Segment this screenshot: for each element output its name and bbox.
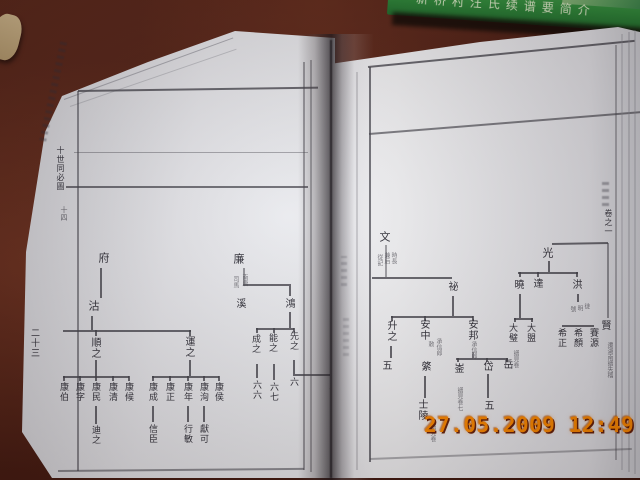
annotation: 明 xyxy=(576,305,582,311)
tree-connector xyxy=(203,376,205,381)
tree-connector xyxy=(452,296,454,316)
tree-connector xyxy=(390,346,392,358)
tree-connector xyxy=(256,364,258,378)
tree-connector xyxy=(457,358,459,362)
chart-border xyxy=(77,91,79,471)
chart-border xyxy=(369,67,371,462)
fore-edge-line xyxy=(621,34,623,470)
fore-edge-line xyxy=(634,30,636,474)
reference-number: 六 xyxy=(288,377,297,387)
tree-connector xyxy=(576,272,578,277)
annotation: 譜見卷七 xyxy=(456,387,462,411)
tree-connector xyxy=(91,316,93,330)
descendant-node: 成之 xyxy=(250,334,259,354)
tree-connector xyxy=(607,243,609,318)
tree-connector xyxy=(518,272,578,274)
tree-connector xyxy=(187,376,189,381)
tree-connector xyxy=(289,312,291,328)
tree-connector xyxy=(152,406,154,422)
descendant-node: 岱 xyxy=(481,361,491,372)
descendant-node: 洪 xyxy=(570,279,580,290)
migration-note: 遷湖南譜失稽 xyxy=(606,342,612,378)
chart-subtitle: 十四 xyxy=(60,206,67,222)
tree-connector xyxy=(95,376,97,381)
tree-connector xyxy=(79,376,81,381)
descendant-node: 賢 xyxy=(599,320,609,331)
annotation: 司馬 xyxy=(232,276,238,288)
descendant-node: 行敏 xyxy=(182,424,191,444)
gutter-faint-text xyxy=(341,256,347,286)
fore-edge-line xyxy=(628,32,630,472)
descendant-node: 綮 xyxy=(419,361,429,372)
descendant-node: 獻可 xyxy=(198,424,207,444)
descendant-node: 升之 xyxy=(385,320,395,342)
annotation: 號 xyxy=(569,306,575,312)
descendant-node: 希正 xyxy=(556,328,565,348)
descendant-node: 康伯 xyxy=(58,382,67,402)
tree-connector xyxy=(112,376,114,381)
ancestor-node: 沽 xyxy=(88,300,99,312)
tree-connector xyxy=(293,374,333,376)
tree-connector xyxy=(95,406,97,424)
ancestor-node: 文 xyxy=(379,231,390,243)
tree-connector xyxy=(256,328,294,330)
tree-connector xyxy=(152,376,219,378)
descendant-node: 康正 xyxy=(164,382,173,402)
annotation: 承信郎 xyxy=(435,338,441,356)
reference-number: 五 xyxy=(482,400,492,411)
descendant-node: 康字 xyxy=(74,382,83,402)
annotation: 徙 xyxy=(583,303,589,309)
tree-connector xyxy=(424,376,426,398)
descendant-node: 迪之 xyxy=(90,425,99,445)
tree-connector xyxy=(372,277,452,279)
annotation: 從記 xyxy=(376,254,382,266)
tree-connector xyxy=(548,261,550,272)
descendant-node: 曉 xyxy=(512,279,522,290)
camera-timestamp: 27.05.2009 12:49 xyxy=(424,413,634,437)
annotation: 敕 xyxy=(427,341,433,347)
tree-connector xyxy=(256,328,258,333)
descendant-node: 康洵 xyxy=(198,382,207,402)
descendant-node: 賽源 xyxy=(588,328,597,348)
chart-border xyxy=(310,60,312,472)
tree-connector xyxy=(128,376,130,381)
tree-connector xyxy=(293,360,295,374)
descendant-node: 信臣 xyxy=(147,424,156,444)
chart-border xyxy=(303,62,305,470)
volume-label: 卷之一 xyxy=(604,209,612,236)
photo-of-genealogy-book: 新桥村汪氏续谱要简介 十世同必圖 十四 二十三 府 沽 順之 運之 xyxy=(0,0,640,480)
reference-number: 六七 xyxy=(268,382,277,402)
descendant-node: 康年 xyxy=(182,382,191,402)
tree-connector xyxy=(273,364,275,380)
descendant-node: 岳 xyxy=(501,359,511,370)
tree-connector xyxy=(152,376,154,381)
descendant-node: 先之 xyxy=(288,331,297,351)
tree-connector xyxy=(537,272,539,277)
tree-connector xyxy=(203,406,205,422)
annotation: 譜見卷 xyxy=(512,350,518,368)
descendant-node: 能之 xyxy=(267,333,276,353)
page-number: 二十三 xyxy=(29,328,38,358)
tree-connector xyxy=(243,268,245,284)
tree-connector xyxy=(243,284,289,286)
tree-connector xyxy=(187,406,189,422)
descendant-node: 大璧 xyxy=(507,323,516,343)
chart-rule xyxy=(74,152,308,153)
descendant-node: 康侯 xyxy=(213,382,222,402)
tree-connector xyxy=(562,325,594,327)
descendant-node: 安中 xyxy=(418,319,428,341)
chart-rule xyxy=(66,186,308,188)
descendant-node: 大盟 xyxy=(525,323,534,343)
ancestor-node: 順之 xyxy=(89,337,99,359)
ancestor-node: 祕 xyxy=(446,281,456,292)
ancestor-node: 鴻 xyxy=(283,298,293,309)
ancestor-node: 府 xyxy=(98,252,109,264)
tree-connector xyxy=(385,245,387,277)
tree-connector xyxy=(519,272,521,277)
descendant-node: 康成 xyxy=(147,382,156,402)
tree-connector xyxy=(63,330,191,332)
tree-connector xyxy=(531,318,533,322)
descendant-node: 崟 xyxy=(452,363,462,374)
reference-number: 六六 xyxy=(251,380,260,400)
edge-mark-smudge xyxy=(602,182,609,206)
tree-connector xyxy=(577,294,579,302)
annotation: 時長 xyxy=(390,252,396,264)
tree-connector xyxy=(189,360,191,376)
descendant-node: 康民 xyxy=(90,382,99,402)
descendant-node: 康清 xyxy=(107,382,116,402)
reference-number: 五 xyxy=(380,360,390,371)
page-stack-edge xyxy=(70,49,237,107)
tree-connector xyxy=(487,374,489,398)
tree-connector xyxy=(169,376,171,381)
chart-border xyxy=(615,45,617,460)
chart-title: 十世同必圖 xyxy=(56,146,64,191)
ancestor-node: 光 xyxy=(542,247,553,259)
tree-connector xyxy=(95,360,97,376)
gutter-faint-text xyxy=(343,316,349,356)
tree-connector xyxy=(100,268,102,298)
book-gutter-line xyxy=(330,40,332,478)
descendant-node: 康候 xyxy=(123,382,132,402)
ancestor-node: 廉 xyxy=(233,253,244,265)
ancestor-node: 運之 xyxy=(183,336,193,358)
tree-connector xyxy=(95,330,97,336)
page-fold-line xyxy=(356,72,358,470)
descendant-node: 希顏 xyxy=(572,328,581,348)
ancestor-node: 溪 xyxy=(234,298,244,309)
tree-connector xyxy=(519,294,521,318)
tree-connector xyxy=(63,376,65,381)
tan-cloth-corner xyxy=(0,11,25,62)
tree-connector xyxy=(289,284,291,296)
tree-connector xyxy=(391,316,473,318)
tree-connector xyxy=(514,318,516,322)
descendant-node: 安邦 xyxy=(466,319,476,341)
tree-connector xyxy=(218,376,220,381)
descendant-node: 達 xyxy=(531,278,541,289)
